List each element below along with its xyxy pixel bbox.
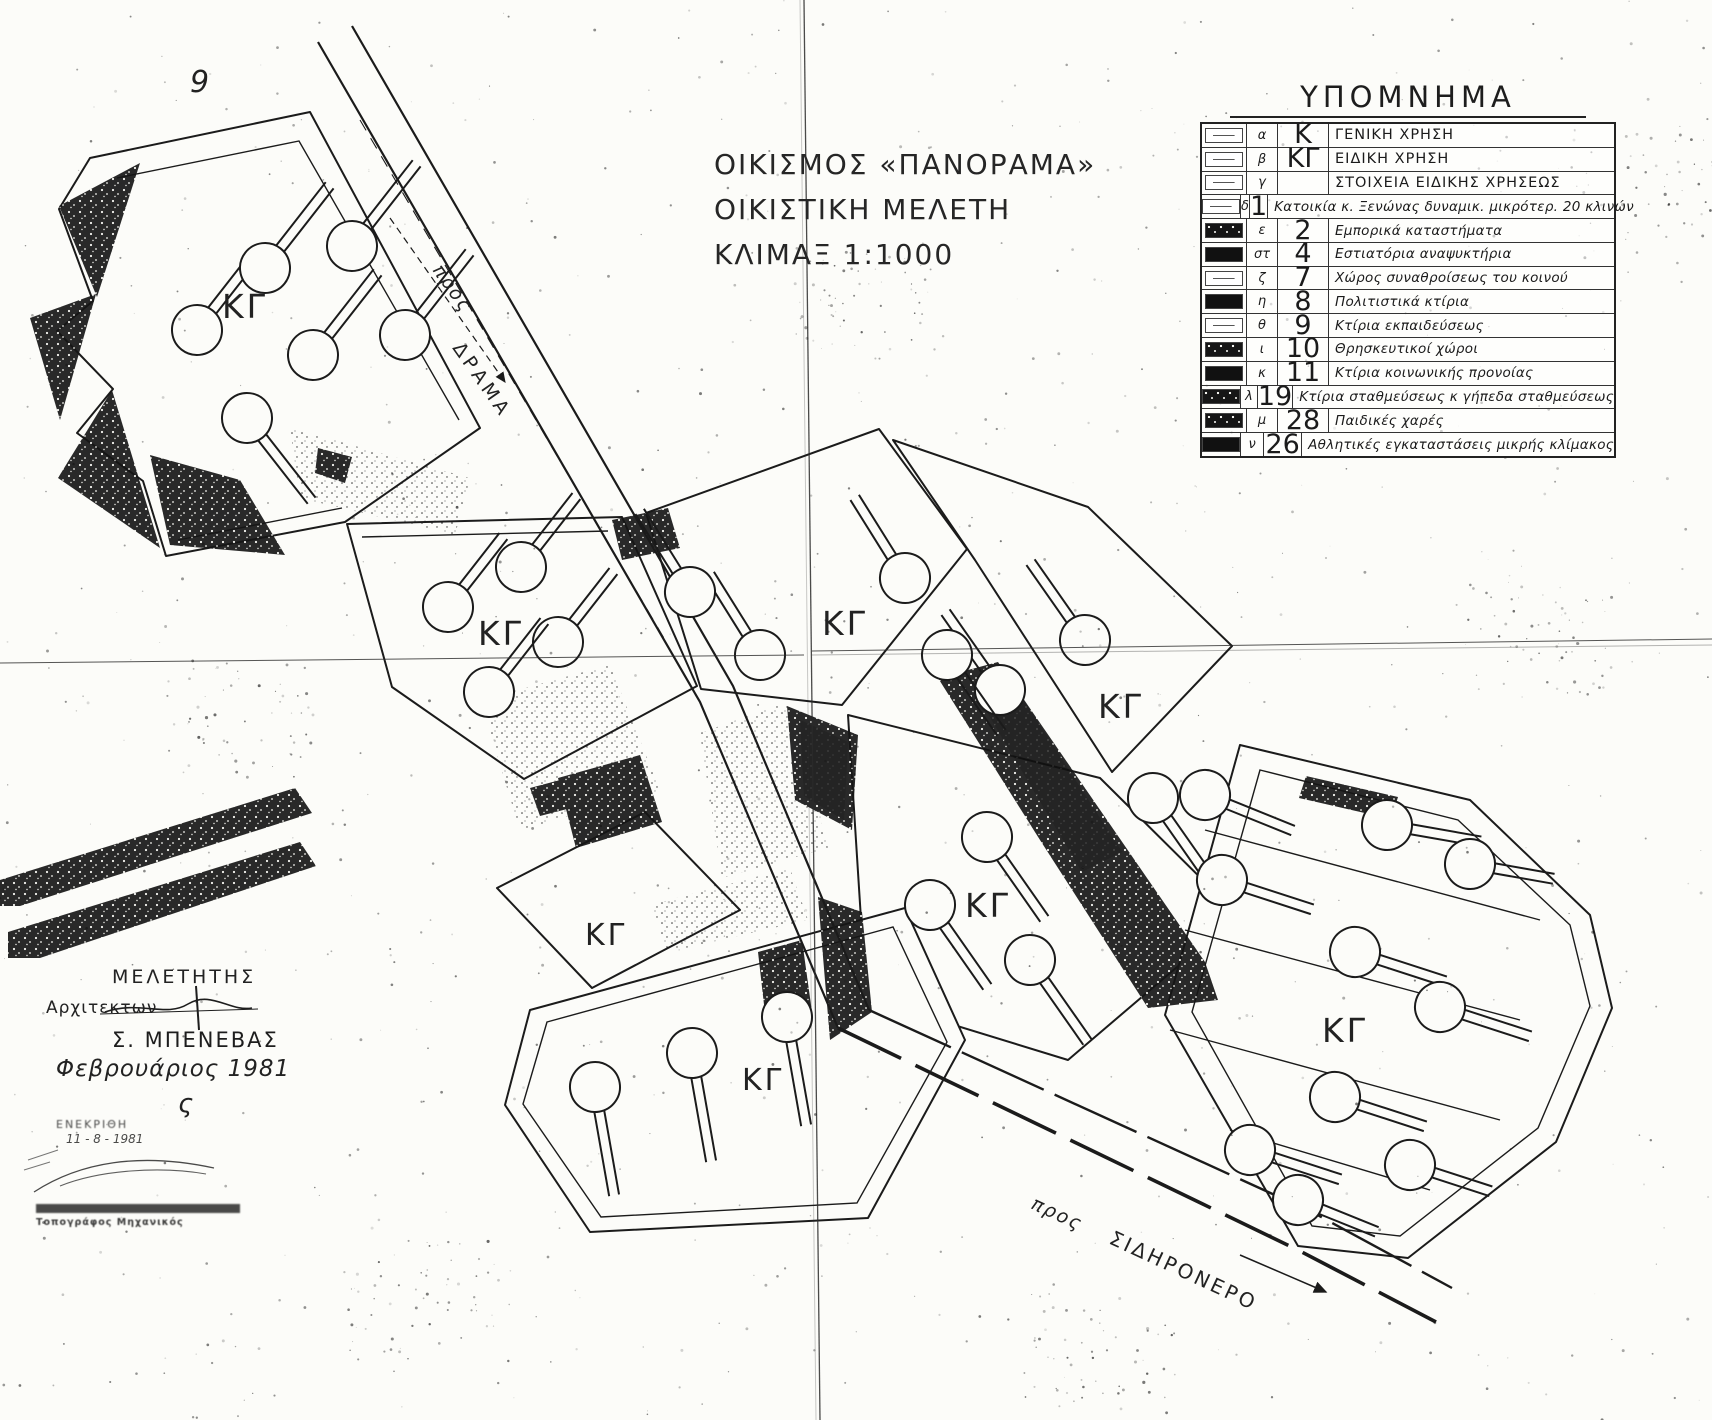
block-label-kg: ΚΓ — [478, 614, 524, 653]
legend-swatch-white — [1205, 175, 1243, 190]
legend-row: ν26Αθλητικές εγκαταστάσεις μικρής κλίμακ… — [1202, 432, 1614, 456]
legend-row: λ19Κτίρια σταθμεύσεως κ γήπεδα σταθμεύσε… — [1202, 385, 1614, 409]
legend-label: Κτίρια κοινωνικής προνοίας — [1329, 365, 1614, 381]
legend-label: Κτίρια σταθμεύσεως κ γήπεδα σταθμεύσεως — [1293, 389, 1614, 405]
credits-profession: Αρχιτεκτων — [46, 998, 157, 1018]
plan-title-line1: ΟΙΚΙΣΜΟΣ «ΠΑΝΟΡΑΜΑ» — [714, 142, 1096, 187]
legend-letter: ι — [1247, 338, 1278, 361]
legend-row: βΚΓΕΙΔΙΚΗ ΧΡΗΣΗ — [1202, 147, 1614, 171]
legend-row: δ1Κατοικία κ. Ξενώνας δυναμικ. μικρότερ.… — [1202, 194, 1614, 218]
legend-row: ζ7Χώρος συναθροίσεως του κοινού — [1202, 266, 1614, 290]
legend-swatch-white — [1205, 271, 1243, 286]
legend-code: 1 — [1250, 195, 1268, 218]
legend-label: Εστιατόρια αναψυκτήρια — [1329, 246, 1614, 262]
block-label-kg: ΚΓ — [222, 287, 268, 326]
legend-swatch-cell — [1202, 219, 1247, 242]
legend-swatch-cell — [1202, 290, 1247, 313]
legend-swatch-white — [1205, 318, 1243, 333]
stamp-date: 11 - 8 - 1981 — [66, 1132, 143, 1146]
legend-swatch-cell — [1202, 195, 1241, 218]
legend-letter: θ — [1247, 314, 1278, 337]
legend-swatch-dark — [1205, 413, 1243, 428]
legend-letter: α — [1247, 124, 1278, 147]
legend-table: αΚΓΕΝΙΚΗ ΧΡΗΣΗβΚΓΕΙΔΙΚΗ ΧΡΗΣΗγΣΤΟΙΧΕΙΑ Ε… — [1200, 122, 1616, 458]
stamp-approval-text: ΕΝΕΚΡΙΘΗ — [56, 1118, 128, 1131]
credits-heading: ΜΕΛΕΤΗΤΗΣ — [112, 966, 256, 988]
architect-signature — [196, 986, 199, 1030]
legend-swatch-cell — [1202, 409, 1247, 432]
legend-swatch-cell — [1202, 172, 1247, 195]
credits-name: Σ. ΜΠΕΝΕΒΑΣ — [112, 1028, 279, 1052]
credits-date: Φεβρουάριος 1981 — [56, 1056, 290, 1082]
legend-swatch-cell — [1202, 148, 1247, 171]
block-label-kg: ΚΓ — [965, 886, 1011, 925]
legend-swatch-cell — [1202, 243, 1247, 266]
legend-letter: στ — [1247, 243, 1278, 266]
legend-code — [1278, 172, 1329, 195]
legend-letter: ν — [1241, 433, 1264, 456]
legend-label: Κτίρια εκπαιδεύσεως — [1329, 318, 1614, 334]
block-label-kg: ΚΓ — [585, 918, 627, 953]
legend-swatch-dark — [1202, 389, 1240, 404]
legend-swatch-black — [1205, 366, 1243, 381]
block-label-kg: ΚΓ — [742, 1063, 784, 1098]
legend-code: ΚΓ — [1278, 148, 1329, 171]
legend-row: στ4Εστιατόρια αναψυκτήρια — [1202, 242, 1614, 266]
legend-row: αΚΓΕΝΙΚΗ ΧΡΗΣΗ — [1202, 124, 1614, 147]
legend-swatch-dark — [1205, 342, 1243, 357]
legend-row: μ28Παιδικές χαρές — [1202, 408, 1614, 432]
block-outline — [893, 440, 1232, 772]
legend-swatch-cell — [1202, 314, 1247, 337]
legend-label: Εμπορικά καταστήματα — [1329, 223, 1614, 239]
legend-swatch-black — [1202, 437, 1240, 452]
road-label-sidironero-name: ΣΙΔΗΡΟΝΕΡΟ — [1106, 1226, 1262, 1316]
legend-swatch-white — [1202, 199, 1240, 214]
stamp-illegible-line — [36, 1204, 240, 1213]
handwritten-page-number: 9 — [190, 65, 209, 100]
block-label-kg: ΚΓ — [1322, 1011, 1368, 1050]
road-label-sidironero-pros: προς — [1028, 1193, 1086, 1236]
handwritten-squiggle: ς — [178, 1089, 193, 1119]
legend-letter: β — [1247, 148, 1278, 171]
legend-letter: η — [1247, 290, 1278, 313]
legend-swatch-white — [1205, 152, 1243, 167]
sidironero-direction-arrow — [1240, 1255, 1326, 1292]
legend-letter: ζ — [1247, 267, 1278, 290]
legend-label: Πολιτιστικά κτίρια — [1329, 294, 1614, 310]
legend-row: θ9Κτίρια εκπαιδεύσεως — [1202, 313, 1614, 337]
stamp-signature — [60, 1170, 206, 1186]
legend-label: Χώρος συναθροίσεως του κοινού — [1329, 270, 1614, 286]
legend-swatch-black — [1205, 294, 1243, 309]
plan-title-line2: ΟΙΚΙΣΤΙΚΗ ΜΕΛΕΤΗ — [714, 187, 1096, 232]
legend-row: ε2Εμπορικά καταστήματα — [1202, 218, 1614, 242]
legend-letter: λ — [1241, 386, 1258, 409]
stamp-signature — [24, 1150, 58, 1170]
legend-label: ΕΙΔΙΚΗ ΧΡΗΣΗ — [1329, 151, 1614, 167]
scanned-plan-page: ΚΓ ΚΓ ΚΓ ΚΓ ΚΓ ΚΓ ΚΓ ΚΓ 9 ς προς ΔΡΑΜΑ π… — [0, 0, 1712, 1420]
legend: ΥΠΟΜΝΗΜΑ αΚΓΕΝΙΚΗ ΧΡΗΣΗβΚΓΕΙΔΙΚΗ ΧΡΗΣΗγΣ… — [1200, 80, 1616, 458]
legend-label: Αθλητικές εγκαταστάσεις μικρής κλίμακος — [1302, 437, 1614, 453]
plan-title: ΟΙΚΙΣΜΟΣ «ΠΑΝΟΡΑΜΑ» ΟΙΚΙΣΤΙΚΗ ΜΕΛΕΤΗ ΚΛΙ… — [714, 142, 1096, 277]
stamp-signature — [34, 1160, 214, 1192]
legend-letter: δ — [1241, 195, 1250, 218]
legend-swatch-cell — [1202, 267, 1247, 290]
legend-label: ΣΤΟΙΧΕΙΑ ΕΙΔΙΚΗΣ ΧΡΗΣΕΩΣ — [1329, 175, 1614, 191]
legend-label: ΓΕΝΙΚΗ ΧΡΗΣΗ — [1329, 127, 1614, 143]
legend-swatch-cell — [1202, 338, 1247, 361]
stamp-officer-title: Τοπογράφος Μηχανικός — [36, 1217, 184, 1228]
legend-swatch-cell — [1202, 433, 1241, 456]
legend-swatch-dark — [1205, 223, 1243, 238]
legend-swatch-white — [1205, 128, 1243, 143]
legend-label: Θρησκευτικοί χώροι — [1329, 341, 1614, 357]
legend-letter: ε — [1247, 219, 1278, 242]
legend-title: ΥΠΟΜΝΗΜΑ — [1230, 80, 1586, 118]
legend-swatch-black — [1205, 247, 1243, 262]
plan-title-line3: ΚΛΙΜΑΞ 1:1000 — [714, 232, 1096, 277]
legend-row: η8Πολιτιστικά κτίρια — [1202, 289, 1614, 313]
legend-swatch-cell — [1202, 362, 1247, 385]
block-label-kg: ΚΓ — [822, 604, 868, 643]
legend-label: Κατοικία κ. Ξενώνας δυναμικ. μικρότερ. 2… — [1268, 199, 1634, 215]
legend-label: Παιδικές χαρές — [1329, 413, 1614, 429]
block-label-kg: ΚΓ — [1098, 687, 1144, 726]
legend-swatch-cell — [1202, 124, 1247, 147]
legend-swatch-cell — [1202, 386, 1241, 409]
legend-row: ι10Θρησκευτικοί χώροι — [1202, 337, 1614, 361]
legend-code: 26 — [1264, 433, 1302, 456]
